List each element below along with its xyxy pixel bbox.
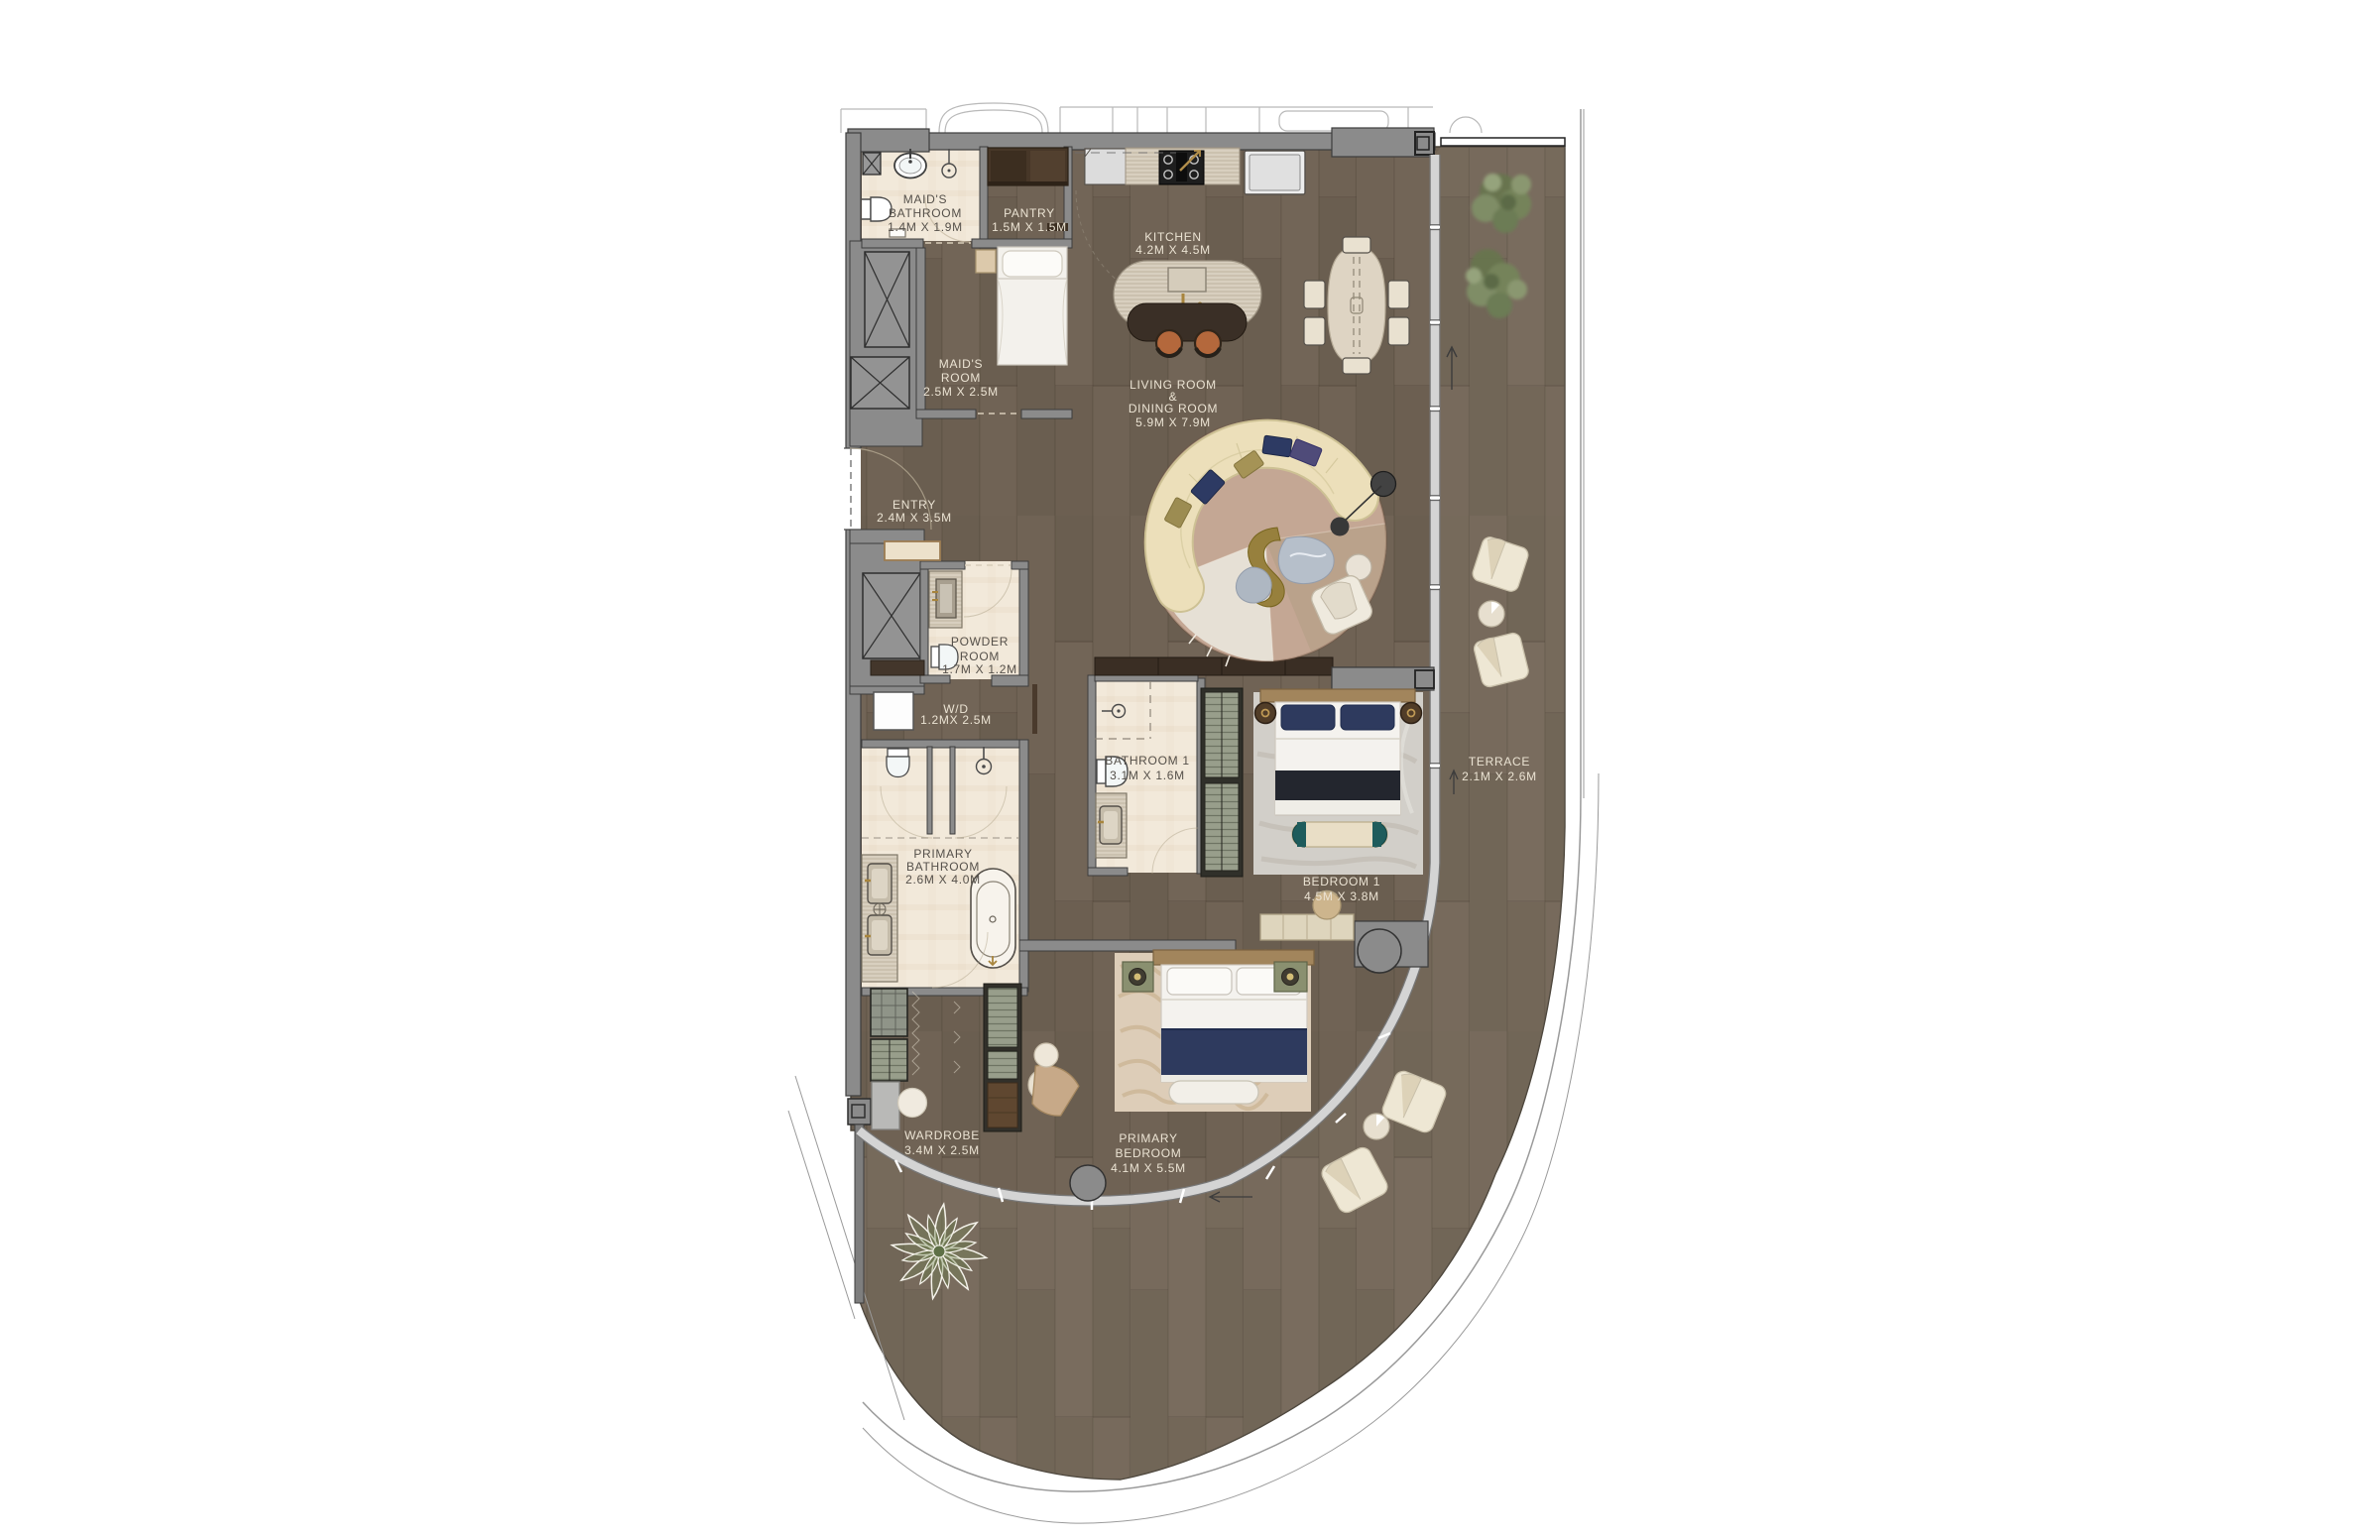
svg-text:3.4M X 2.5M: 3.4M X 2.5M [904,1143,980,1157]
svg-text:5.9M X 7.9M: 5.9M X 7.9M [1135,415,1211,429]
svg-text:WARDROBE: WARDROBE [904,1128,980,1142]
svg-text:PANTRY: PANTRY [1004,206,1055,220]
svg-text:POWDER: POWDER [951,635,1009,649]
svg-text:DINING ROOM: DINING ROOM [1129,402,1218,415]
svg-text:BEDROOM: BEDROOM [1116,1146,1182,1160]
svg-text:3.1M X 1.6M: 3.1M X 1.6M [1110,769,1185,782]
svg-text:2.1M X 2.6M: 2.1M X 2.6M [1462,770,1537,783]
svg-text:1.5M X 1.5M: 1.5M X 1.5M [992,220,1067,234]
svg-text:MAID'S: MAID'S [903,192,948,206]
svg-text:ENTRY: ENTRY [892,498,936,512]
svg-text:BEDROOM 1: BEDROOM 1 [1303,875,1380,888]
svg-text:PRIMARY: PRIMARY [913,847,972,861]
svg-text:ROOM: ROOM [941,371,981,385]
svg-text:2.6M X 4.0M: 2.6M X 4.0M [905,873,981,887]
svg-text:MAID'S: MAID'S [939,357,984,371]
svg-text:4.5M X 3.8M: 4.5M X 3.8M [1304,889,1379,903]
svg-text:2.5M X 2.5M: 2.5M X 2.5M [923,385,999,399]
svg-text:KITCHEN: KITCHEN [1144,230,1202,244]
svg-text:4.1M X 5.5M: 4.1M X 5.5M [1111,1161,1186,1175]
svg-text:PRIMARY: PRIMARY [1119,1131,1177,1145]
svg-text:ROOM: ROOM [960,650,1000,663]
svg-text:4.2M X 4.5M: 4.2M X 4.5M [1135,243,1211,257]
svg-text:1.2MX 2.5M: 1.2MX 2.5M [920,713,992,727]
svg-text:BATHROOM: BATHROOM [906,860,980,874]
svg-text:1.4M X 1.9M: 1.4M X 1.9M [888,220,963,234]
svg-text:BATHROOM 1: BATHROOM 1 [1105,754,1189,768]
svg-text:BATHROOM: BATHROOM [889,206,962,220]
svg-text:TERRACE: TERRACE [1469,755,1530,769]
svg-text:2.4M X 3.5M: 2.4M X 3.5M [877,511,952,525]
svg-text:1.7M X 1.2M: 1.7M X 1.2M [942,662,1017,676]
